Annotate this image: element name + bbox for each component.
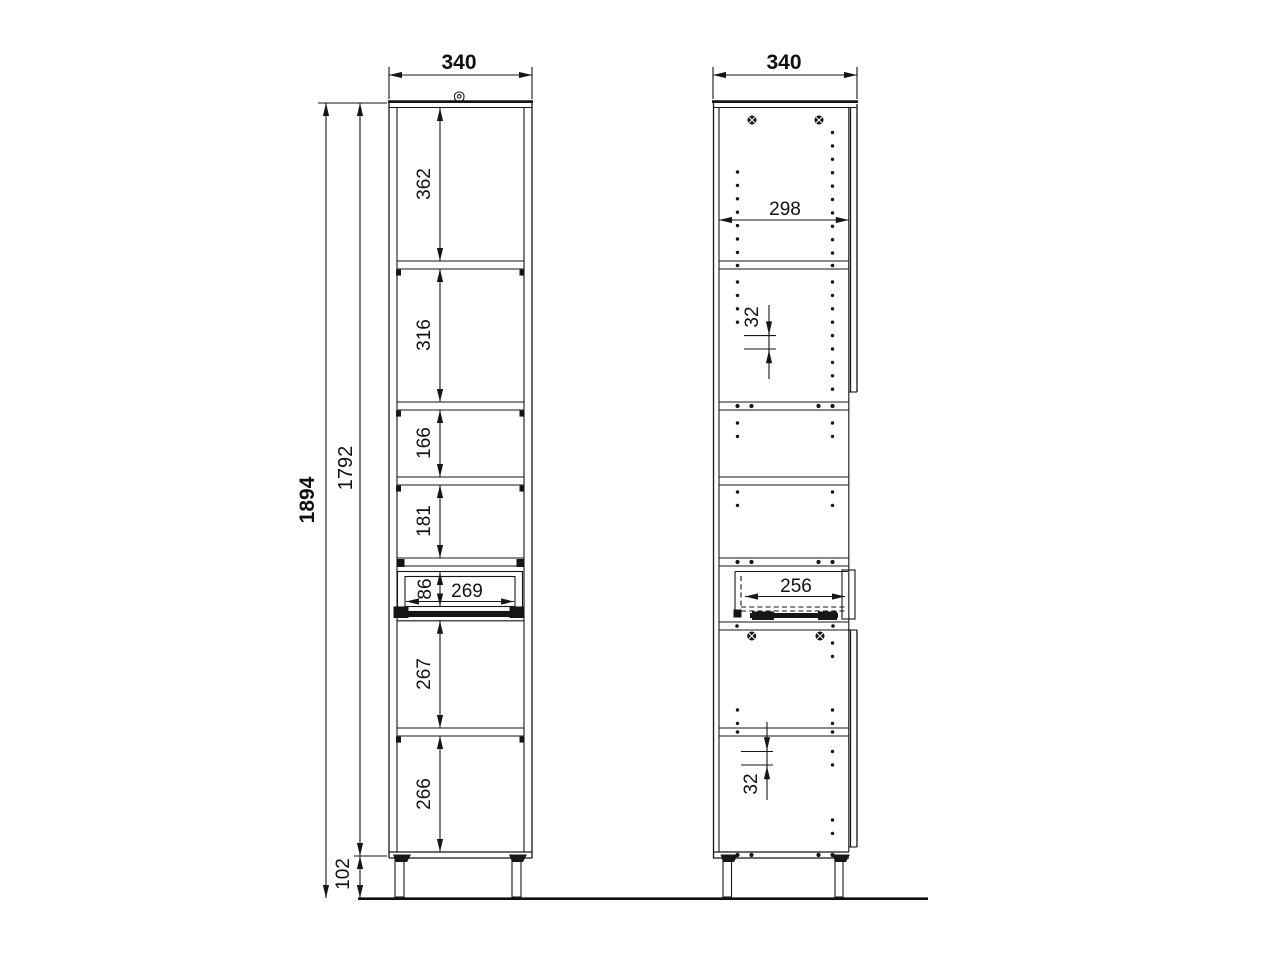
side-connectors [735, 116, 835, 858]
dim-drawer-height: 86 [415, 578, 436, 599]
dim-compartment-1: 362 [414, 168, 435, 200]
cam-lock [816, 632, 825, 641]
dim-compartment-3: 166 [414, 427, 435, 459]
dim-drawer-inner-width: 269 [451, 581, 483, 602]
dim-drawer-inner-depth: 256 [780, 576, 812, 597]
dim-compartment-4: 181 [414, 505, 435, 537]
dowel-heads [735, 264, 835, 857]
cam-lock [747, 632, 756, 641]
side-legs [721, 855, 851, 898]
side-dimensions: 340 298 32 256 32 [713, 51, 857, 800]
front-legs [393, 855, 527, 898]
wall-mount-knob [455, 92, 465, 102]
drawing-canvas: 340 1894 1792 102 362 316 166 181 86 267 [0, 0, 1272, 954]
side-doors [849, 104, 857, 847]
dim-side-width: 340 [766, 51, 801, 74]
dim-inner-depth: 298 [769, 199, 801, 220]
cam-lock [815, 116, 824, 125]
cam-lock [748, 116, 757, 125]
dim-compartment-2: 316 [414, 319, 435, 351]
front-carcass [388, 92, 533, 858]
front-view: 340 1894 1792 102 362 316 166 181 86 267 [296, 51, 533, 898]
dim-compartment-6: 267 [414, 658, 435, 690]
side-view: 340 298 32 256 32 [712, 51, 858, 897]
front-dimensions: 340 1894 1792 102 362 316 166 181 86 267 [296, 51, 532, 898]
dim-hole-pitch-bottom: 32 [741, 773, 762, 794]
dim-carcass-height: 1792 [335, 446, 357, 491]
side-shelves [719, 261, 849, 736]
dim-hole-pitch-top: 32 [742, 306, 763, 327]
dim-compartment-7: 266 [414, 778, 435, 810]
shelf-pin-holes [736, 131, 834, 835]
cabinet-drawing-svg: 340 1894 1792 102 362 316 166 181 86 267 [0, 0, 1272, 954]
dim-total-height: 1894 [296, 476, 319, 523]
dim-plinth-height: 102 [333, 858, 354, 890]
dim-front-width: 340 [441, 51, 476, 74]
